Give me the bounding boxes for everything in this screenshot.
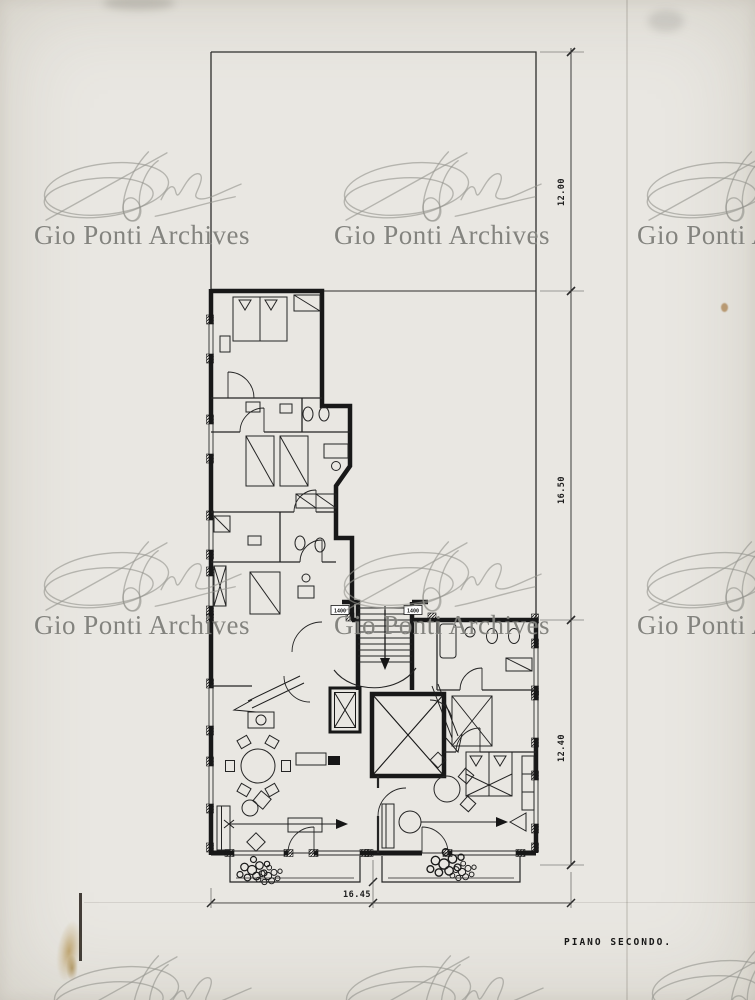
speck xyxy=(721,303,728,312)
radiator-label-right: 1400 xyxy=(407,609,419,615)
radiator-label-left: 1400 xyxy=(334,609,346,615)
stain-small xyxy=(66,955,78,981)
radiator-labels: 1400 1400 xyxy=(331,606,422,615)
elevator-shaft xyxy=(330,688,444,776)
bedroom-right-furniture xyxy=(452,696,492,746)
dimension-lines xyxy=(207,48,584,908)
smudge xyxy=(648,10,684,32)
photo-crease xyxy=(84,902,755,903)
bathroom-fixtures xyxy=(440,624,532,671)
right-wall-windows xyxy=(530,648,541,824)
dimension-right-top: 12.00 xyxy=(557,178,567,206)
floor-plan-drawing: 1400 1400 xyxy=(0,0,755,1000)
living-room-left-furniture xyxy=(217,712,340,851)
sight-arrows xyxy=(224,676,508,829)
dimension-right-bottom: 12.40 xyxy=(557,734,567,762)
plan-title: PIANO SECONDO. xyxy=(564,937,672,948)
dimension-right-middle: 16.50 xyxy=(557,476,567,504)
upper-wing-furniture xyxy=(214,295,348,614)
photo-fold-line xyxy=(626,0,628,1000)
dimension-bottom: 16.45 xyxy=(343,890,371,900)
archival-photo: 1400 1400 xyxy=(0,0,755,1000)
living-room-right-furniture xyxy=(382,752,534,848)
